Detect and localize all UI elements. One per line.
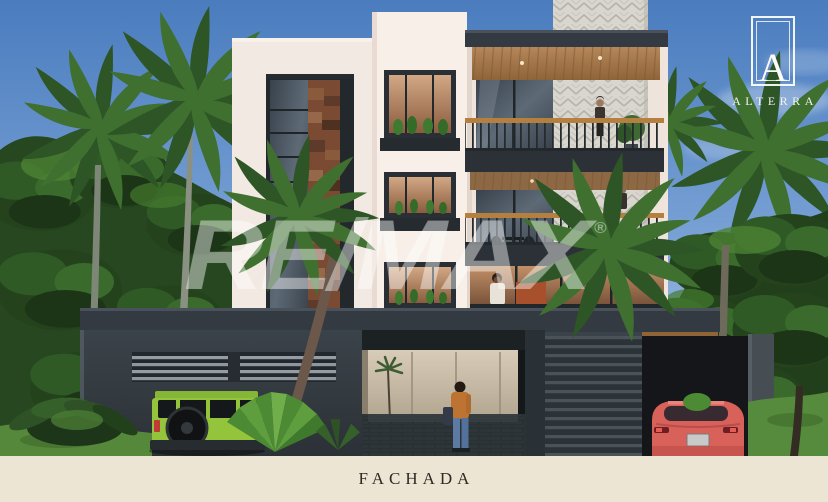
caption-band: FACHADA: [0, 456, 828, 502]
alterra-brand-name: ALTERRA: [720, 94, 826, 109]
slatted-gate: [545, 332, 642, 456]
alterra-monogram-frame: A: [751, 16, 795, 86]
alterra-monogram: A: [753, 48, 793, 88]
balcony3-railing: [465, 123, 664, 149]
tower-window-3: [384, 262, 456, 308]
facade-rendering: [0, 0, 828, 456]
presentation-board: RE/MAX® A ALTERRA FACHADA: [0, 0, 828, 502]
driveway-opening: [362, 330, 525, 456]
tower-window-1: [380, 70, 460, 151]
leaf-cluster: [683, 393, 711, 411]
carport-pillar: [525, 330, 545, 456]
facade-illustration: [0, 0, 828, 456]
caption-text: FACHADA: [354, 469, 475, 489]
alterra-logo: A ALTERRA: [720, 16, 826, 109]
balcony3-handrail: [465, 118, 664, 123]
tower-window-2: [380, 172, 460, 231]
balcony3-floor-fascia: [465, 151, 664, 172]
